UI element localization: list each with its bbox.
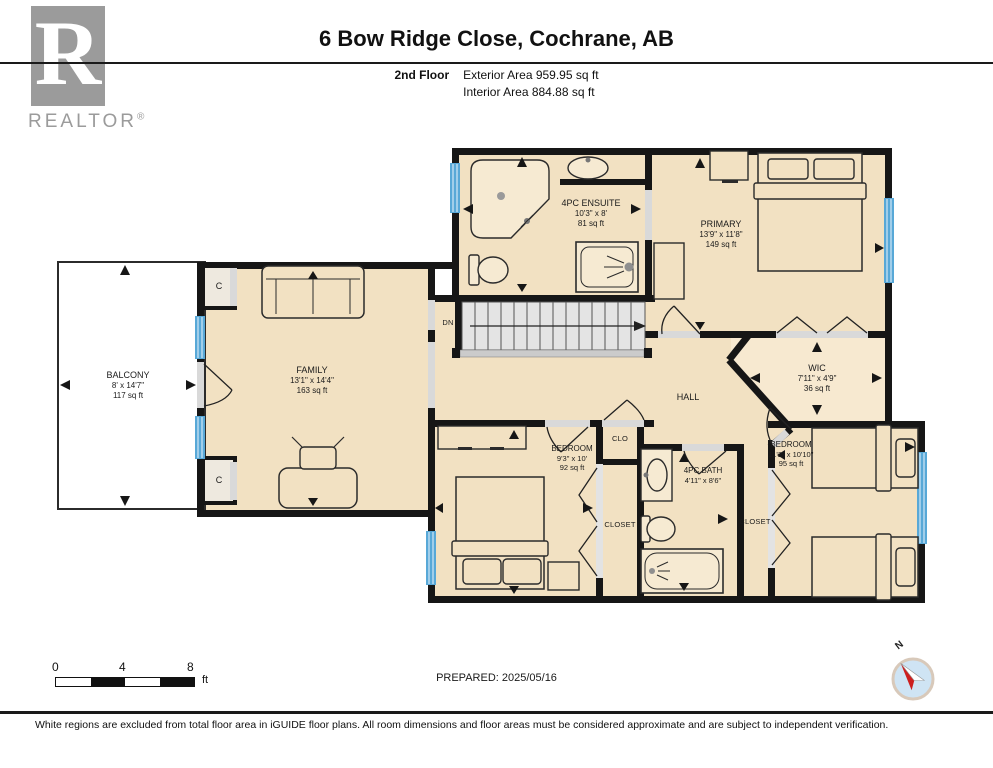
label-closet-right: CLOSET <box>739 517 770 528</box>
primary-dresser-2 <box>654 243 684 299</box>
disclaimer-text: White regions are excluded from total fl… <box>35 719 888 731</box>
title-rule <box>0 62 993 64</box>
label-primary: PRIMARY 13'9" x 11'8" 149 sq ft <box>699 219 742 251</box>
floor-areas: Exterior Area 959.95 sq ft Interior Area… <box>463 68 598 99</box>
label-bedroom-right: BEDROOM 11'2" x 10'10" 95 sq ft <box>769 440 814 469</box>
bedroom-right-bed-top <box>812 425 918 491</box>
label-bedroom-left: BEDROOM 9'3" x 10' 92 sq ft <box>551 444 592 473</box>
prepared-date: PREPARED: 2025/05/16 <box>0 672 993 684</box>
window-primary <box>884 198 894 283</box>
bedroom-right-bed-bottom <box>812 534 918 600</box>
interior-area: Interior Area 884.88 sq ft <box>463 85 598 99</box>
registered-mark: ® <box>137 112 144 123</box>
window-bedroom-left <box>426 531 436 585</box>
label-closet-c-bottom: C <box>216 475 223 486</box>
ensuite-toilet <box>469 255 508 285</box>
floor-label: 2nd Floor <box>394 68 449 99</box>
label-ensuite: 4PC ENSUITE 10'3" x 8' 81 sq ft <box>561 198 620 230</box>
ensuite-sink <box>568 157 608 179</box>
primary-bed <box>754 153 866 271</box>
bedroom-left-bed <box>452 477 548 589</box>
exterior-area: Exterior Area 959.95 sq ft <box>463 68 598 82</box>
bath-vanity-sink <box>641 449 672 501</box>
label-bath: 4PC BATH 4'11" x 8'6" <box>684 466 723 485</box>
label-hall: HALL <box>677 392 700 403</box>
primary-dresser <box>710 151 748 180</box>
footer-rule <box>0 711 993 714</box>
page-title: 6 Bow Ridge Close, Cochrane, AB <box>0 26 993 52</box>
label-balcony: BALCONY 8' x 14'7" 117 sq ft <box>106 370 149 402</box>
floor-info: 2nd Floor Exterior Area 959.95 sq ft Int… <box>0 68 993 99</box>
floor-plan-page: R REALTOR® 6 Bow Ridge Close, Cochrane, … <box>0 0 993 768</box>
label-family: FAMILY 13'1" x 14'4" 163 sq ft <box>290 365 334 397</box>
label-wic: WIC 7'11" x 4'9" 36 sq ft <box>798 363 837 395</box>
window-ensuite <box>450 163 460 213</box>
bath-toilet <box>641 516 675 542</box>
realtor-logo-word: REALTOR® <box>28 111 158 133</box>
window-family-lower <box>195 416 205 459</box>
bedroom-left-nightstand <box>548 562 579 590</box>
label-clo: CLO <box>612 434 628 445</box>
label-closet-c-top: C <box>216 281 223 292</box>
window-family-upper <box>195 316 205 359</box>
ensuite-shower <box>576 242 638 292</box>
stair-railing <box>460 350 644 357</box>
stairs <box>452 302 652 358</box>
label-stairs-dn: DN <box>442 318 453 329</box>
label-closet-left: CLOSET <box>604 520 635 531</box>
